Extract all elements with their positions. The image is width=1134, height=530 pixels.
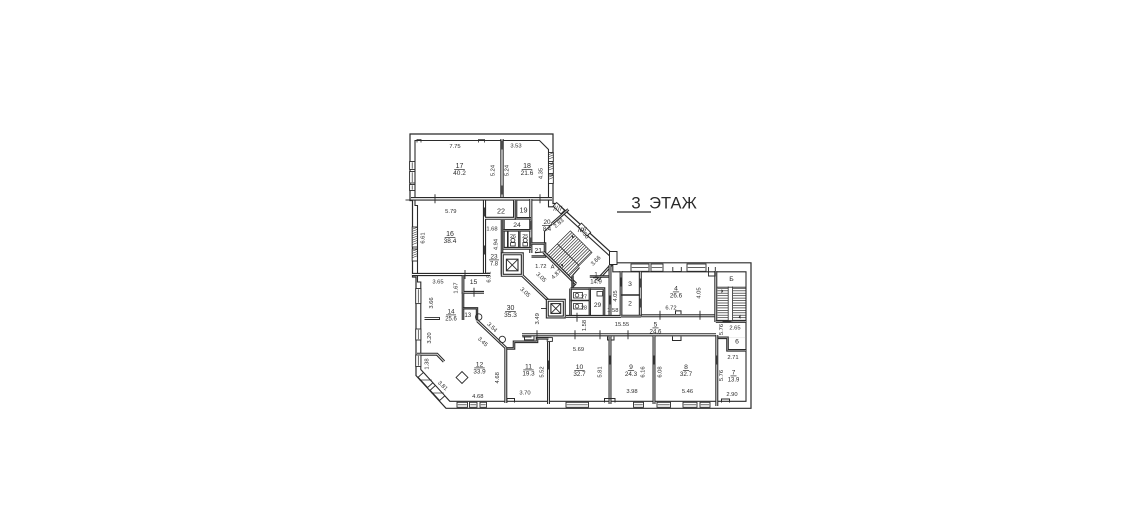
svg-text:5.52: 5.52 (540, 366, 546, 377)
svg-text:24.3: 24.3 (625, 371, 638, 378)
svg-text:2.65: 2.65 (729, 326, 740, 332)
svg-text:1.58: 1.58 (607, 308, 618, 314)
svg-text:6.16: 6.16 (641, 366, 647, 377)
svg-text:ЭТАЖ: ЭТАЖ (649, 195, 697, 213)
svg-text:А: А (551, 265, 555, 271)
svg-text:3.66: 3.66 (429, 297, 435, 308)
svg-text:16: 16 (446, 231, 454, 238)
svg-text:2.71: 2.71 (727, 355, 738, 361)
svg-text:28: 28 (581, 306, 587, 312)
svg-text:13: 13 (464, 312, 471, 319)
svg-text:5.79: 5.79 (445, 209, 456, 215)
svg-text:3.53: 3.53 (510, 144, 521, 150)
svg-text:11: 11 (525, 364, 532, 371)
svg-text:24: 24 (513, 222, 521, 229)
svg-text:15: 15 (470, 279, 478, 286)
svg-text:8: 8 (684, 364, 688, 371)
svg-text:3.70: 3.70 (519, 390, 530, 396)
svg-text:13.9: 13.9 (728, 378, 740, 384)
svg-text:23: 23 (490, 254, 498, 261)
svg-text:3.65: 3.65 (432, 280, 443, 286)
svg-text:3: 3 (628, 281, 632, 288)
svg-text:35.3: 35.3 (504, 312, 517, 319)
svg-text:30: 30 (507, 305, 515, 312)
svg-text:26.6: 26.6 (670, 293, 683, 300)
svg-text:6.61: 6.61 (421, 232, 427, 243)
svg-text:10: 10 (576, 364, 584, 371)
svg-text:5.46: 5.46 (682, 389, 693, 395)
svg-text:2: 2 (628, 301, 632, 308)
svg-text:29: 29 (594, 302, 602, 309)
svg-text:1.68: 1.68 (486, 227, 497, 233)
svg-text:Б: Б (729, 276, 734, 283)
svg-text:20: 20 (543, 219, 551, 226)
svg-text:4.68: 4.68 (495, 372, 501, 383)
svg-text:1.38: 1.38 (425, 358, 431, 369)
svg-text:4.94: 4.94 (493, 238, 499, 250)
svg-text:1.67: 1.67 (454, 282, 460, 293)
svg-text:6.51: 6.51 (486, 271, 492, 282)
svg-text:1.58: 1.58 (582, 320, 588, 331)
svg-text:1: 1 (594, 272, 598, 279)
svg-text:25.6: 25.6 (445, 317, 457, 323)
svg-text:4.35: 4.35 (539, 168, 545, 179)
svg-text:5.24: 5.24 (491, 164, 497, 176)
svg-text:12: 12 (476, 362, 484, 369)
svg-text:25: 25 (522, 234, 528, 240)
svg-text:3.49: 3.49 (535, 313, 541, 324)
svg-text:4.68: 4.68 (472, 394, 483, 400)
svg-text:19: 19 (520, 206, 528, 215)
svg-text:6.72: 6.72 (665, 306, 676, 312)
svg-text:32.7: 32.7 (573, 371, 586, 378)
svg-text:26: 26 (510, 234, 516, 240)
svg-text:5.81: 5.81 (598, 366, 604, 377)
svg-text:14: 14 (447, 309, 455, 316)
svg-text:3.98: 3.98 (626, 389, 637, 395)
svg-text:5.76: 5.76 (719, 370, 725, 381)
svg-text:22: 22 (497, 207, 505, 216)
svg-text:4.05: 4.05 (613, 290, 619, 301)
svg-text:1.72: 1.72 (535, 264, 546, 270)
svg-text:19.3: 19.3 (522, 371, 535, 378)
svg-text:15.55: 15.55 (615, 322, 630, 328)
svg-text:7.75: 7.75 (449, 144, 460, 150)
svg-text:7.8: 7.8 (490, 262, 499, 268)
svg-text:2.90: 2.90 (726, 392, 737, 398)
svg-text:8.4: 8.4 (543, 227, 552, 233)
svg-text:6: 6 (735, 339, 739, 346)
svg-text:17: 17 (456, 163, 464, 170)
svg-text:9: 9 (629, 364, 633, 371)
svg-text:3: 3 (631, 194, 640, 213)
svg-text:21.6: 21.6 (521, 170, 534, 177)
svg-text:4.05: 4.05 (697, 287, 703, 298)
svg-text:5.24: 5.24 (505, 164, 511, 176)
svg-text:4: 4 (674, 286, 678, 293)
svg-text:7: 7 (732, 370, 736, 377)
svg-text:5.76: 5.76 (719, 324, 725, 335)
svg-text:14.9: 14.9 (590, 280, 602, 286)
svg-text:24.6: 24.6 (650, 329, 663, 336)
svg-text:5.69: 5.69 (573, 347, 584, 353)
svg-text:21: 21 (535, 248, 543, 255)
svg-text:32.7: 32.7 (680, 371, 693, 378)
svg-text:38.4: 38.4 (444, 238, 457, 245)
svg-text:18: 18 (523, 163, 531, 170)
svg-text:3.20: 3.20 (427, 332, 433, 343)
svg-text:27: 27 (581, 295, 587, 301)
svg-text:40.2: 40.2 (453, 170, 466, 177)
svg-text:33.9: 33.9 (473, 369, 486, 376)
svg-text:5: 5 (654, 322, 658, 329)
svg-text:6.08: 6.08 (658, 366, 664, 377)
